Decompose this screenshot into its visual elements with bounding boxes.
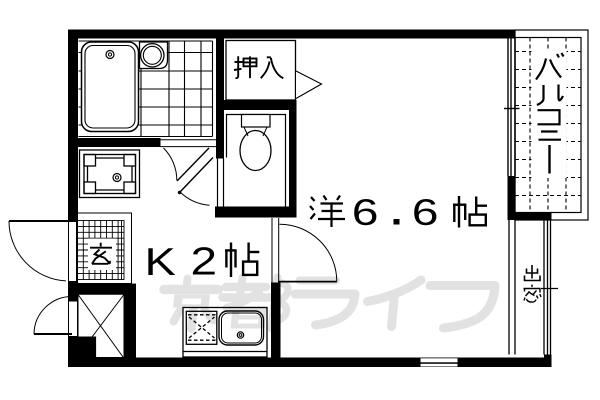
svg-text:6: 6 <box>412 192 439 233</box>
svg-text:2: 2 <box>191 241 218 284</box>
svg-text:6: 6 <box>352 192 379 233</box>
svg-text:K: K <box>145 241 177 284</box>
